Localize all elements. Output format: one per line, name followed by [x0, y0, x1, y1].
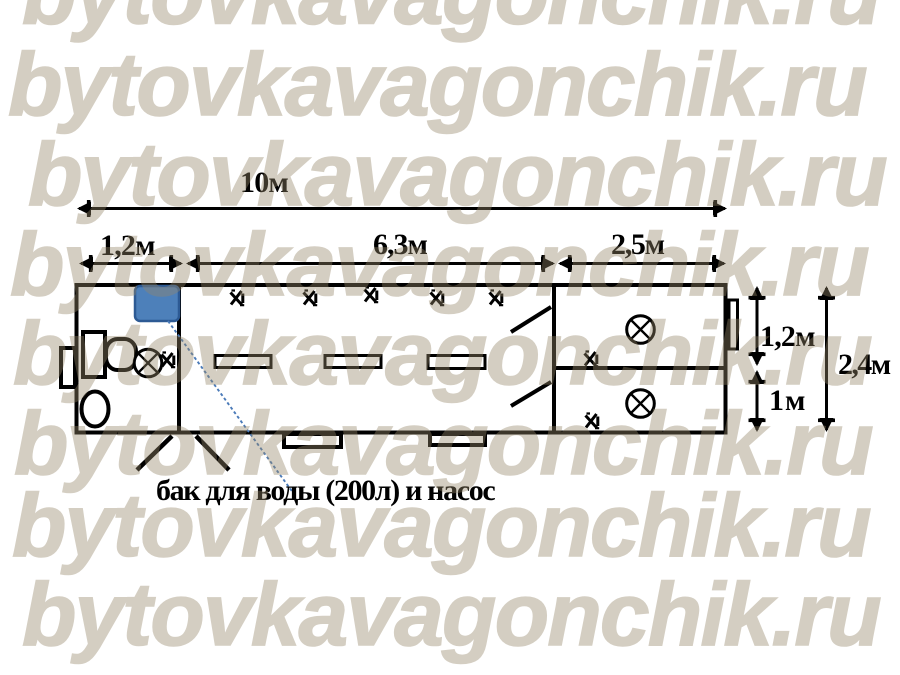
- svg-text:bytovkavagonchik.ru: bytovkavagonchik.ru: [13, 303, 871, 403]
- svg-text:bytovkavagonchik.ru: bytovkavagonchik.ru: [10, 214, 868, 314]
- svg-text:bytovkavagonchik.ru: bytovkavagonchik.ru: [22, 564, 880, 664]
- svg-text:bytovkavagonchik.ru: bytovkavagonchik.ru: [8, 34, 866, 134]
- svg-text:bytovkavagonchik.ru: bytovkavagonchik.ru: [12, 475, 870, 575]
- svg-text:bytovkavagonchik.ru: bytovkavagonchik.ru: [28, 124, 886, 224]
